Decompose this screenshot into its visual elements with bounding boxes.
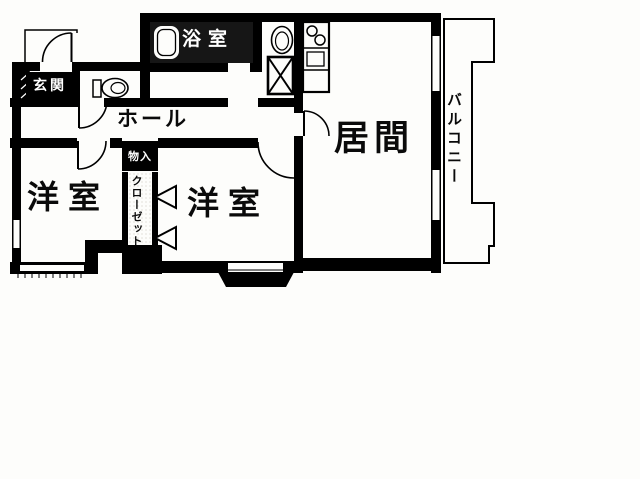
stove-burner-1 <box>307 26 317 36</box>
washbasin-inner <box>276 32 289 50</box>
bifold-door-icon-1 <box>155 186 176 208</box>
wall-hall-top-2 <box>104 98 228 107</box>
window-living-east-2 <box>433 170 440 220</box>
floor-plan-drawing <box>0 0 640 479</box>
wall-bathroom-bottom-1 <box>143 63 228 72</box>
label-closet: クローゼット <box>131 175 142 247</box>
label-living-room: 居間 <box>334 122 414 157</box>
entrance-door-arc <box>43 33 72 62</box>
living-door-arc <box>304 111 329 136</box>
toilet-tank-icon <box>93 80 101 97</box>
sink-icon <box>307 52 324 66</box>
stove-burner-2 <box>315 35 325 45</box>
wall-toilet-top <box>72 62 148 71</box>
wall-hall-top-3 <box>258 98 303 107</box>
wall-bathroom-bottom-2 <box>250 63 262 72</box>
wall-closet-bottom-block <box>122 245 162 274</box>
wall-closet-right <box>152 172 158 245</box>
label-hall: ホール <box>117 109 189 130</box>
toilet-door-arc <box>79 100 107 128</box>
wall-hall-bottom-2 <box>110 138 122 148</box>
label-western-room-left: 洋室 <box>27 181 109 213</box>
wall-notch-bar <box>85 240 127 253</box>
wall-bathroom-left <box>140 13 150 105</box>
label-balcony: バルコニー <box>446 92 461 187</box>
label-bathroom: 浴室 <box>182 30 234 49</box>
wall-bottom-living <box>294 258 441 271</box>
wall-notch-block <box>85 253 98 274</box>
wall-entrance-top-left <box>12 62 40 71</box>
west-room-right-door-arc <box>258 142 294 178</box>
wall-living-divider-lower <box>294 136 303 273</box>
label-storage: 物入 <box>122 141 158 171</box>
wall-hall-bottom-1 <box>10 138 77 148</box>
label-entrance: 玄関 <box>26 72 74 98</box>
bay-window-glass <box>228 263 283 272</box>
porch-outline <box>25 30 77 62</box>
window-west-room-bottom <box>20 265 84 271</box>
window-living-east-1 <box>433 36 440 91</box>
label-western-room-right: 洋室 <box>187 187 269 219</box>
wall-hall-top-1 <box>10 98 78 107</box>
wall-top <box>143 13 440 22</box>
wall-hall-bottom-3 <box>158 138 258 148</box>
toilet-bowl-inner <box>111 83 125 94</box>
west-room-left-door-arc <box>78 141 106 169</box>
window-west-room-left <box>14 220 20 248</box>
scan-tick-marks <box>18 274 81 278</box>
bay-window-icon <box>212 261 300 287</box>
floor-plan-page: ホール 洋室 洋室 居間 玄関 浴室 物入 バルコニー クローゼット <box>0 0 640 479</box>
